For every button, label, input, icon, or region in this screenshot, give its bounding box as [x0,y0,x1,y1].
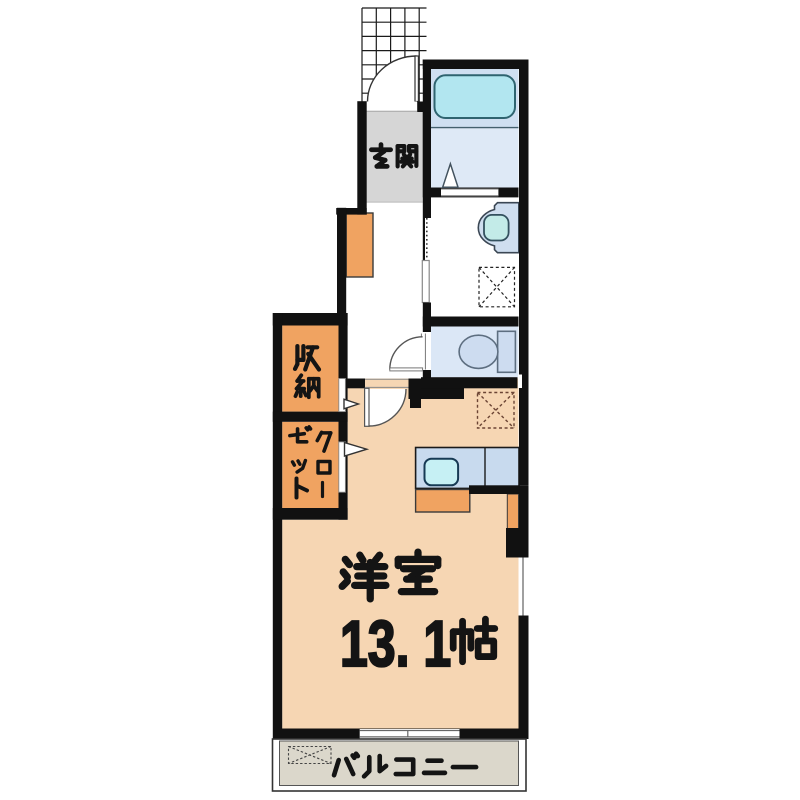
svg-text:13. 1: 13. 1 [340,609,451,681]
